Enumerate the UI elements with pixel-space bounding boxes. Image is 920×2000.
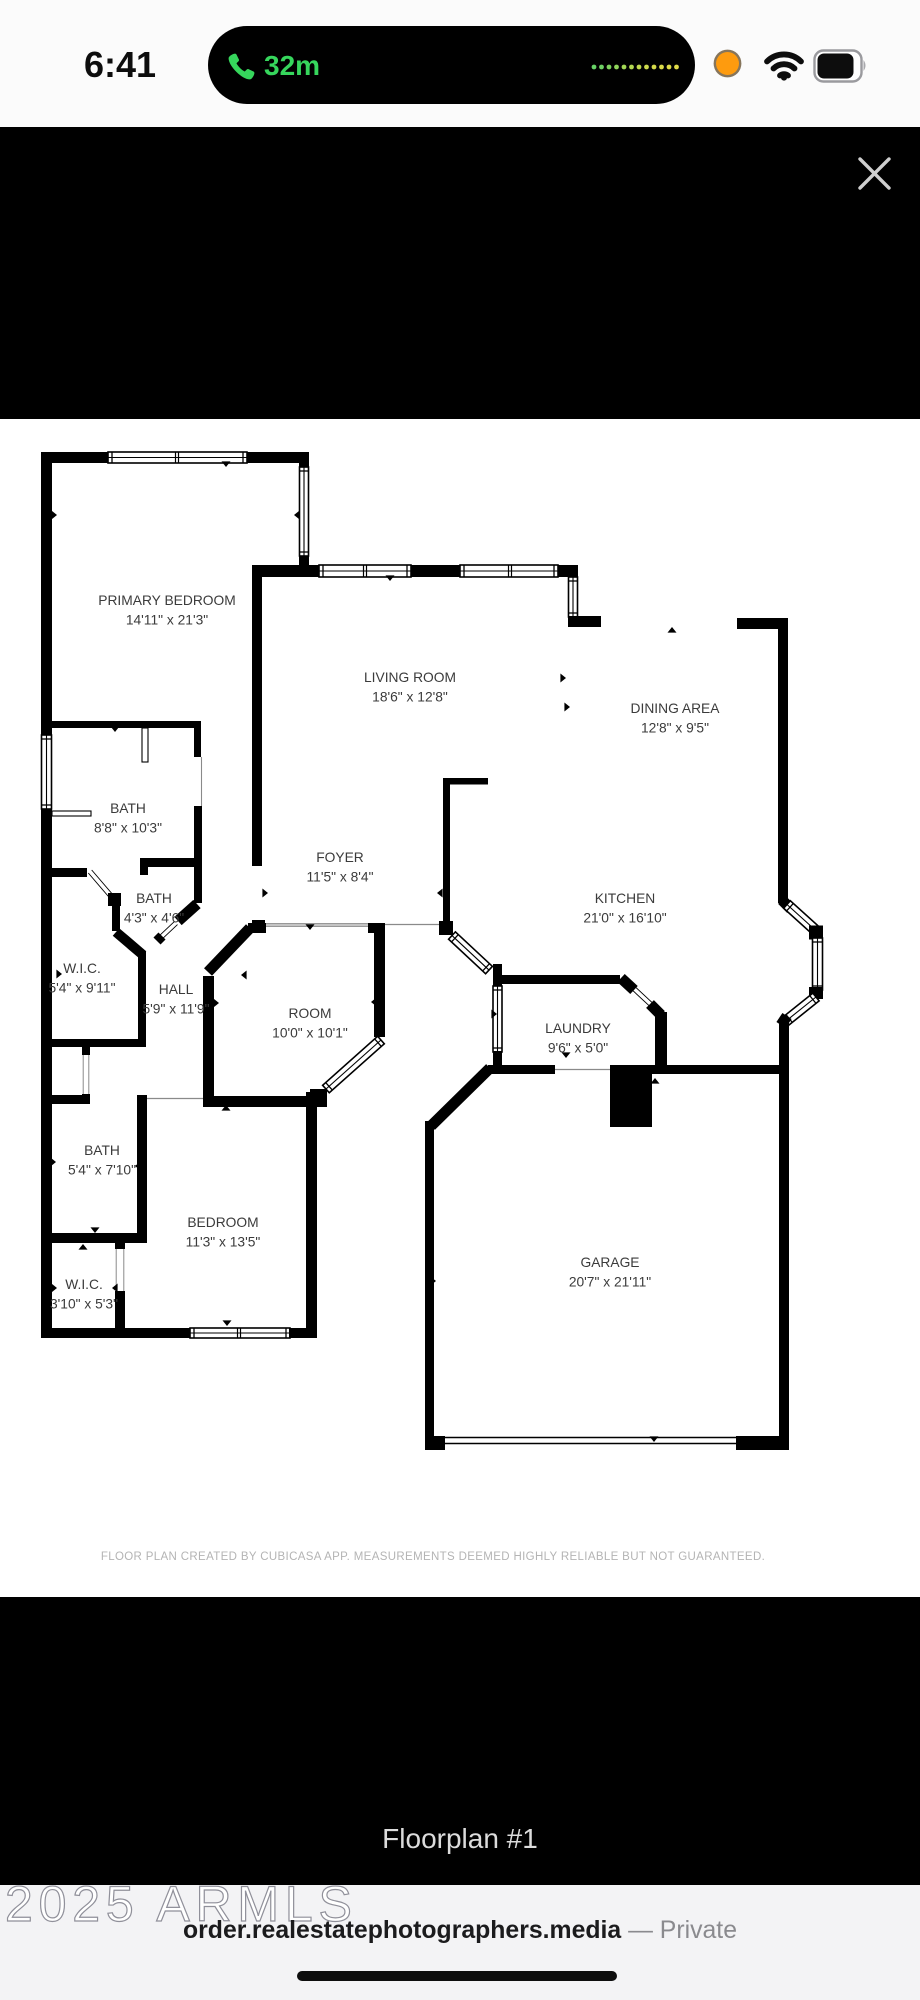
svg-text:5'4" x 9'11": 5'4" x 9'11"	[49, 981, 116, 996]
svg-text:8'8" x 10'3": 8'8" x 10'3"	[94, 821, 162, 836]
svg-text:12'8" x 9'5": 12'8" x 9'5"	[641, 721, 709, 736]
svg-text:21'0" x 16'10": 21'0" x 16'10"	[583, 911, 666, 926]
svg-text:3'10" x 5'3": 3'10" x 5'3"	[50, 1297, 118, 1312]
svg-text:5'9" x 11'9": 5'9" x 11'9"	[143, 1002, 210, 1017]
svg-text:BATH: BATH	[110, 801, 146, 816]
svg-text:ROOM: ROOM	[289, 1006, 332, 1021]
svg-text:W.I.C.: W.I.C.	[65, 1277, 103, 1292]
svg-text:18'6" x 12'8": 18'6" x 12'8"	[372, 690, 448, 705]
svg-text:11'3" x 13'5": 11'3" x 13'5"	[186, 1235, 261, 1250]
svg-text:5'4" x 7'10": 5'4" x 7'10"	[68, 1163, 136, 1178]
svg-text:HALL: HALL	[159, 982, 194, 997]
svg-text:W.I.C.: W.I.C.	[63, 961, 101, 976]
svg-text:20'7" x 21'11": 20'7" x 21'11"	[569, 1275, 651, 1290]
svg-text:14'11" x 21'3": 14'11" x 21'3"	[126, 613, 208, 628]
svg-text:11'5" x 8'4": 11'5" x 8'4"	[307, 870, 374, 885]
svg-text:PRIMARY BEDROOM: PRIMARY BEDROOM	[98, 593, 235, 608]
svg-text:10'0" x 10'1": 10'0" x 10'1"	[272, 1026, 348, 1041]
svg-text:DINING AREA: DINING AREA	[631, 701, 721, 716]
svg-text:LAUNDRY: LAUNDRY	[545, 1021, 611, 1036]
svg-text:LIVING ROOM: LIVING ROOM	[364, 670, 456, 685]
svg-text:GARAGE: GARAGE	[580, 1255, 639, 1270]
svg-text:BATH: BATH	[136, 891, 172, 906]
svg-text:KITCHEN: KITCHEN	[595, 891, 656, 906]
svg-text:FOYER: FOYER	[316, 850, 364, 865]
svg-text:BATH: BATH	[84, 1143, 120, 1158]
svg-text:BEDROOM: BEDROOM	[187, 1215, 258, 1230]
svg-text:9'6" x 5'0": 9'6" x 5'0"	[548, 1041, 608, 1056]
svg-text:4'3" x 4'6": 4'3" x 4'6"	[124, 911, 184, 926]
